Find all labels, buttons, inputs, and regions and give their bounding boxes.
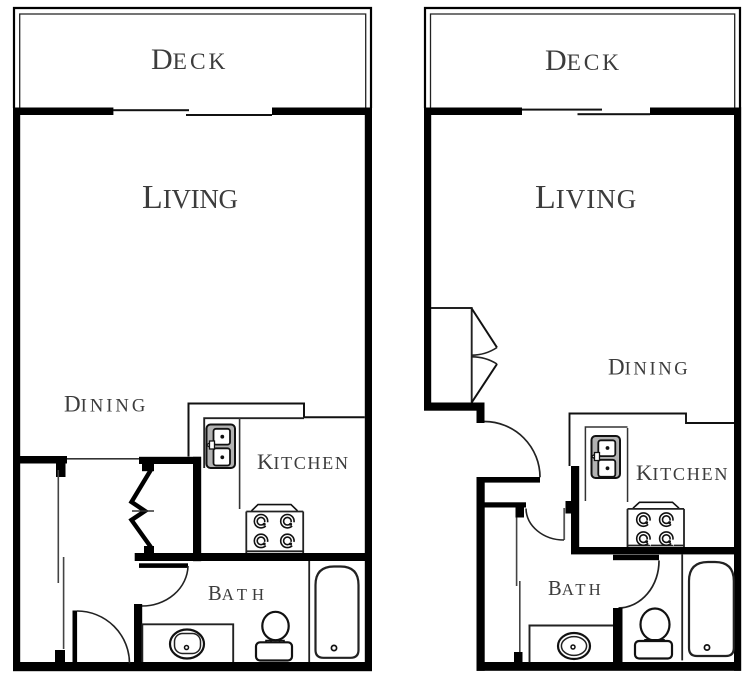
svg-text:KITCHEN: KITCHEN: [636, 460, 729, 485]
svg-text:DECK: DECK: [151, 43, 228, 76]
svg-text:DECK: DECK: [545, 44, 622, 77]
svg-text:BATH: BATH: [548, 578, 604, 600]
svg-text:KITCHEN: KITCHEN: [257, 449, 350, 474]
svg-text:DINING: DINING: [608, 355, 690, 380]
svg-text:LIVING: LIVING: [142, 179, 238, 216]
svg-text:DINING: DINING: [64, 392, 148, 417]
svg-text:BATH: BATH: [208, 583, 269, 605]
svg-text:LIVING: LIVING: [535, 179, 637, 216]
